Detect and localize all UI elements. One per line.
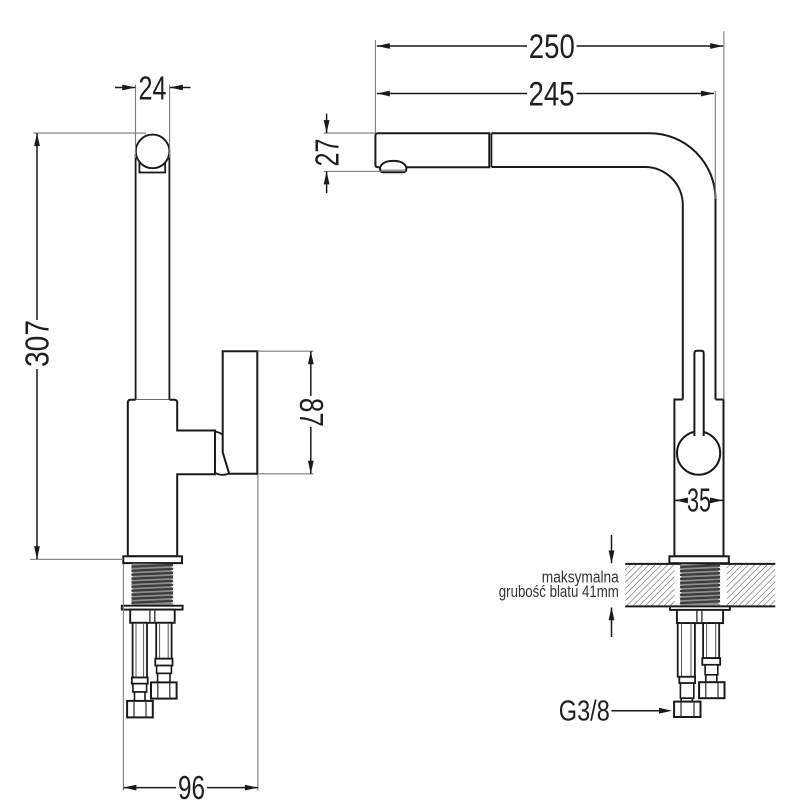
svg-text:27: 27: [309, 139, 346, 167]
svg-text:307: 307: [19, 320, 56, 367]
svg-text:96: 96: [178, 769, 205, 800]
svg-text:grubość blatu 41mm: grubość blatu 41mm: [499, 583, 619, 601]
svg-text:250: 250: [529, 28, 575, 66]
svg-text:24: 24: [139, 70, 167, 107]
svg-text:87: 87: [293, 398, 330, 427]
svg-text:G3/8: G3/8: [559, 696, 610, 728]
svg-text:245: 245: [529, 76, 575, 114]
svg-text:35: 35: [687, 482, 711, 519]
